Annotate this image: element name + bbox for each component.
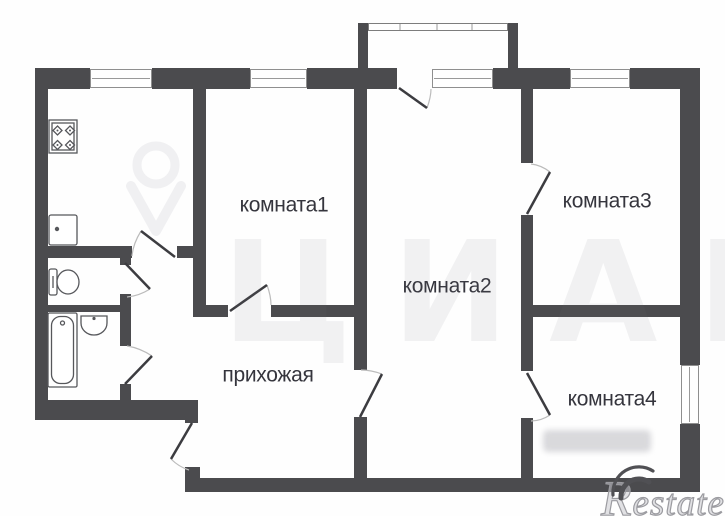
restate-swoosh-icon xyxy=(0,0,725,516)
floorplan: комната1 комната2 комната3 комната4 прих… xyxy=(0,0,725,516)
